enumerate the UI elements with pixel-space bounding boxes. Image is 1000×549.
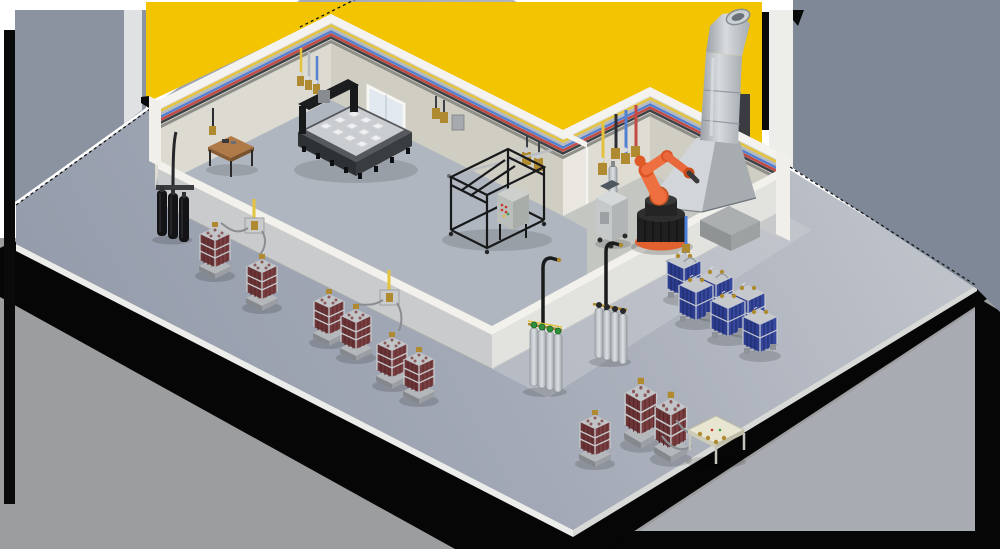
left-shadow-strip [4, 30, 15, 504]
wall-junction-box [452, 115, 464, 130]
facility-illustration [0, 0, 1000, 549]
yellow-edge-shadow [762, 12, 769, 130]
white-corner-strip [769, 10, 793, 168]
bench-tool-2 [231, 141, 236, 144]
bench-tool [222, 139, 229, 143]
corner-post-left [149, 96, 161, 167]
corner-post-right [776, 149, 790, 241]
bottom-edge-shadow [585, 531, 975, 549]
hood-duct [700, 52, 742, 144]
isometric-scene [0, 0, 1000, 549]
backdrop-left-edge [124, 10, 142, 124]
gantry-carriage [318, 90, 330, 103]
right-edge-shadow [975, 296, 1000, 549]
